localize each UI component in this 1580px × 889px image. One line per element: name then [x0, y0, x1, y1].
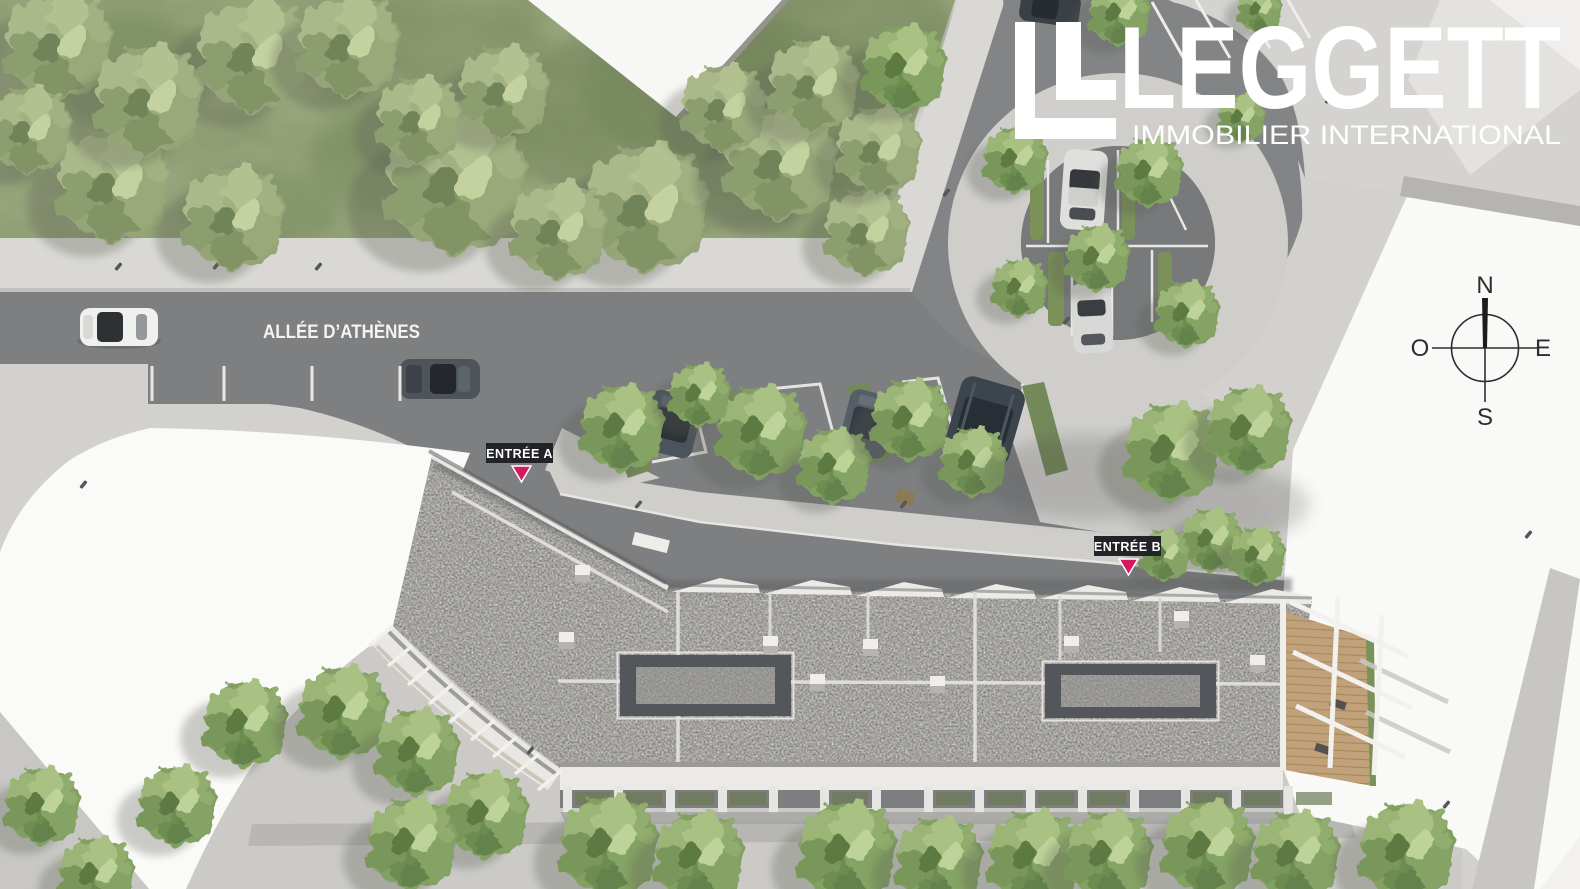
svg-text:LEGGETT: LEGGETT: [1119, 2, 1561, 133]
svg-text:ENTRÉE A: ENTRÉE A: [486, 446, 553, 461]
svg-text:O: O: [1411, 335, 1430, 362]
svg-text:E: E: [1535, 335, 1551, 362]
svg-text:N: N: [1476, 272, 1493, 299]
svg-text:IMMOBILIER INTERNATIONAL: IMMOBILIER INTERNATIONAL: [1132, 120, 1561, 150]
svg-text:S: S: [1477, 404, 1493, 431]
svg-text:ALLÉE D’ATHÈNES: ALLÉE D’ATHÈNES: [263, 320, 420, 343]
svg-text:ENTRÉE B: ENTRÉE B: [1094, 539, 1161, 554]
